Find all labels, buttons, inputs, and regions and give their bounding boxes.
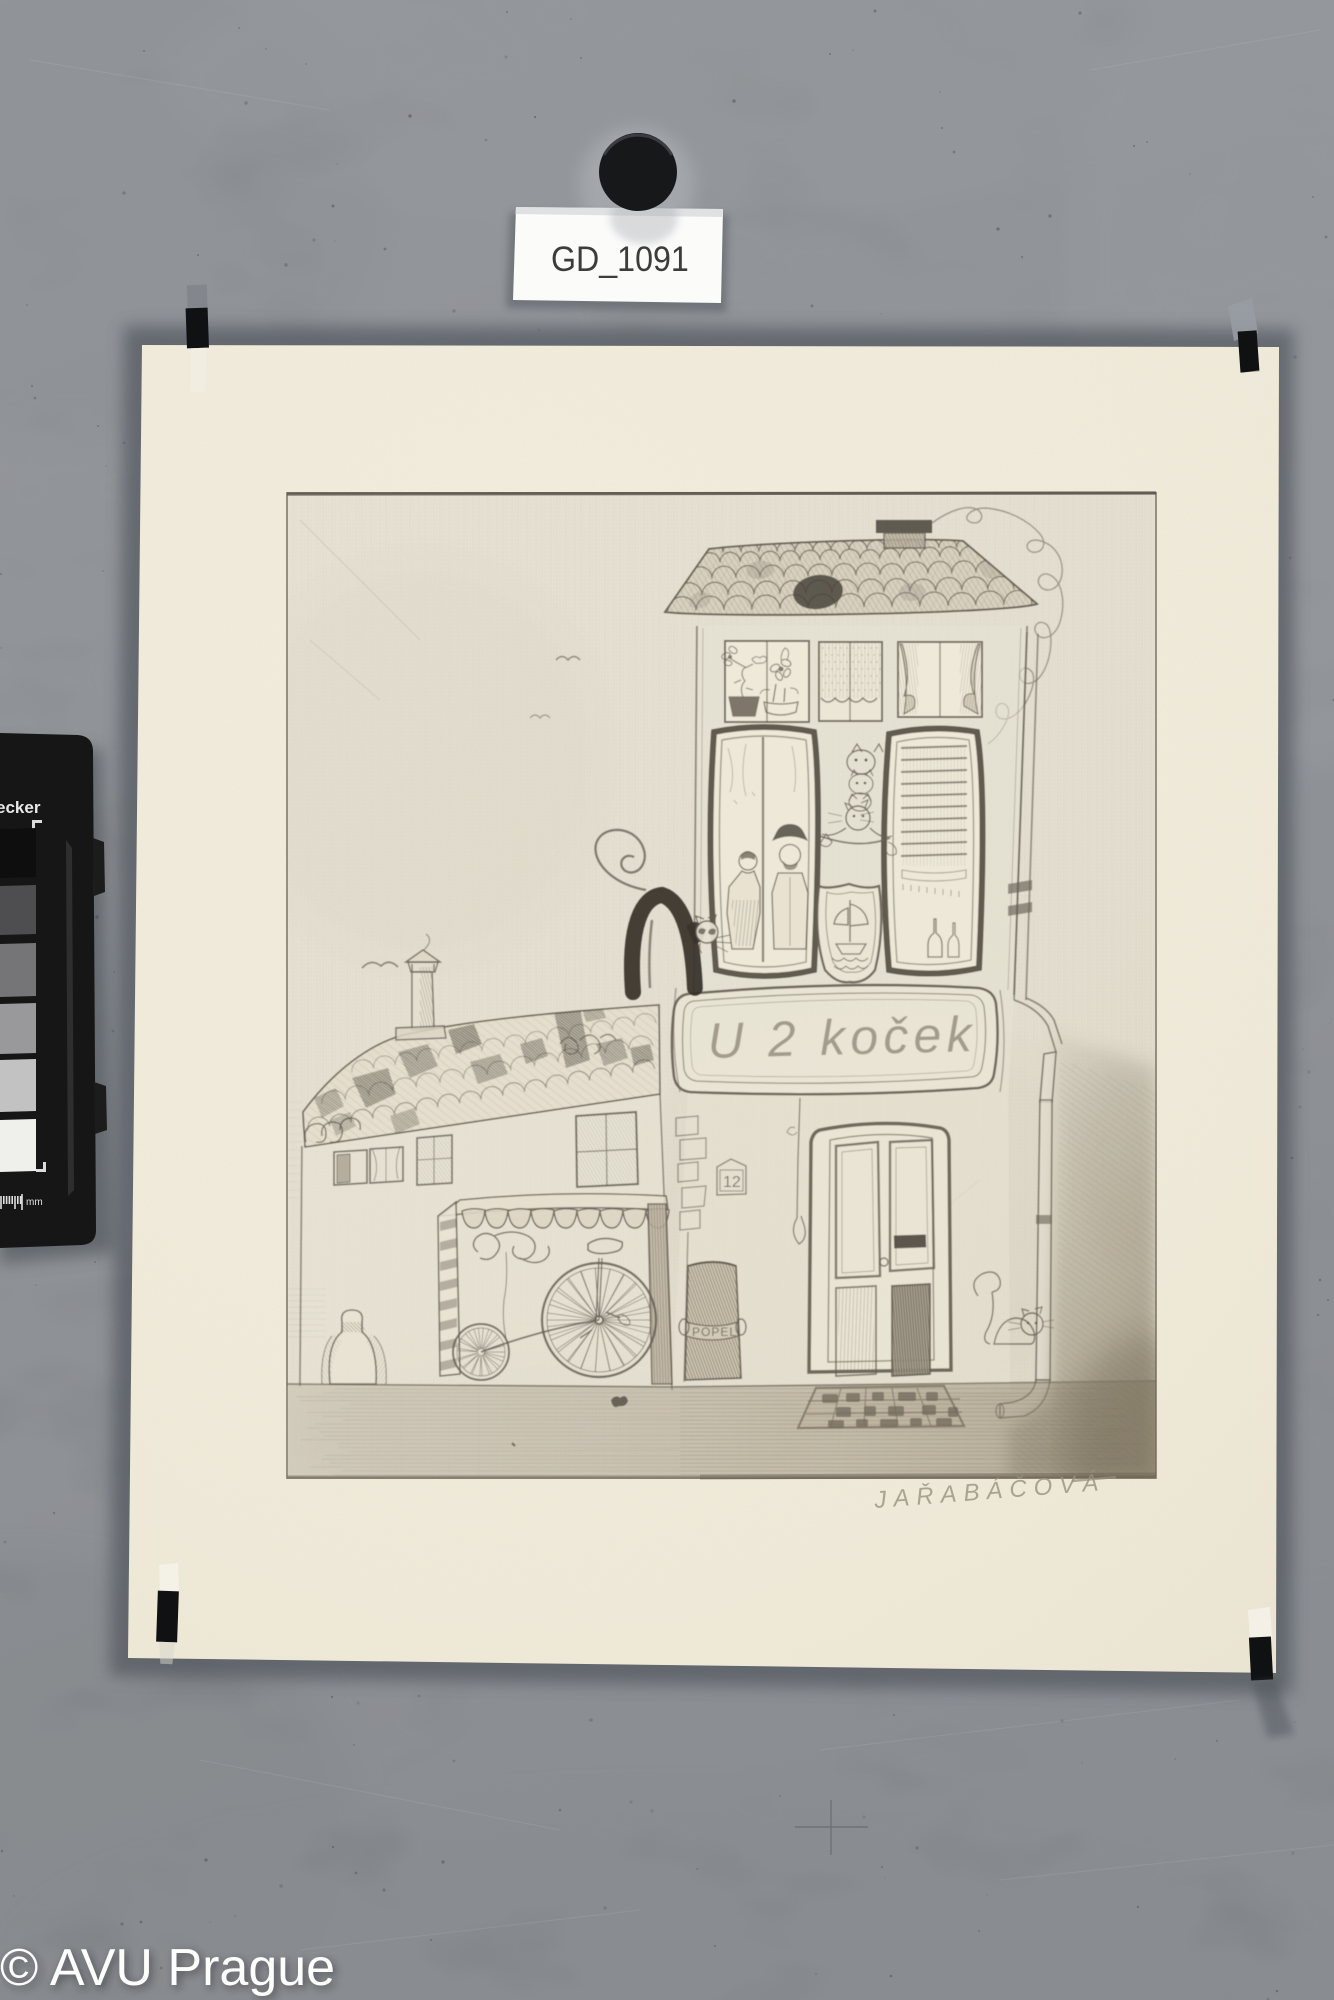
svg-text:POPEL: POPEL [692,1325,737,1339]
svg-text:12: 12 [723,1174,741,1191]
svg-text:mm: mm [26,1197,43,1208]
svg-text:© AVU Prague: © AVU Prague [0,1939,335,1997]
svg-text:ecker: ecker [0,798,41,817]
svg-text:GD_1091: GD_1091 [551,241,689,280]
